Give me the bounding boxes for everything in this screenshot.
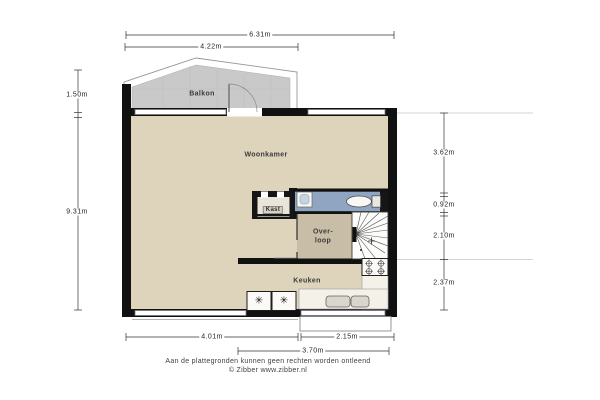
stove-icon	[362, 259, 388, 276]
room-label-balkon: Balkon	[189, 91, 214, 98]
window-bottom-left	[135, 311, 246, 316]
room-label-overloop-line1: Over-	[313, 229, 333, 236]
wall-spur-kitchen	[238, 258, 364, 264]
dryer-icon: ✳	[280, 296, 288, 307]
floorplan-page: Balkon Woonkamer Kast Over- loop Keuken …	[0, 0, 600, 400]
washbasin-icon	[297, 192, 312, 207]
toilet-icon	[347, 196, 381, 207]
room-label-overloop-line2: loop	[315, 238, 331, 245]
kitchen-sink-icon	[326, 296, 369, 307]
dim-bottom-right: 2.15m	[334, 334, 359, 341]
footer-copyright: © Zibber www.zibber.nl	[229, 367, 307, 374]
window-top-right	[308, 110, 385, 115]
dim-bottom-left: 4.01m	[199, 334, 224, 341]
dim-left-balcony-depth: 1.50m	[64, 92, 89, 99]
wall-left	[122, 84, 131, 317]
washer-icon: ✳	[255, 296, 263, 307]
room-label-kast: Kast	[263, 206, 283, 214]
footer-disclaimer: Aan de plattegronden kunnen geen rechten…	[165, 358, 370, 365]
floorplan-drawing	[0, 0, 600, 400]
room-label-keuken: Keuken	[293, 278, 320, 285]
window-bottom-right	[301, 311, 385, 316]
dim-bottom-inner: 3.70m	[300, 348, 325, 355]
window-bay-outline	[300, 317, 391, 332]
dim-top-balcony: 4.22m	[198, 44, 223, 51]
toilet-room	[293, 189, 390, 215]
balcony	[124, 58, 297, 110]
room-label-woonkamer: Woonkamer	[244, 152, 287, 159]
dim-right-upper-mid: 0.92m	[431, 202, 456, 209]
extension-lines	[397, 113, 533, 260]
kast-closet	[252, 191, 295, 219]
dim-top-total: 6.31m	[247, 32, 272, 39]
stairs-icon	[352, 212, 388, 259]
dim-right-lower-mid: 2.10m	[431, 233, 456, 240]
window-top-left	[135, 110, 226, 115]
dim-left-total: 9.31m	[64, 209, 89, 216]
dim-right-bottom: 2.37m	[431, 280, 456, 287]
dim-right-top: 3.62m	[431, 150, 456, 157]
